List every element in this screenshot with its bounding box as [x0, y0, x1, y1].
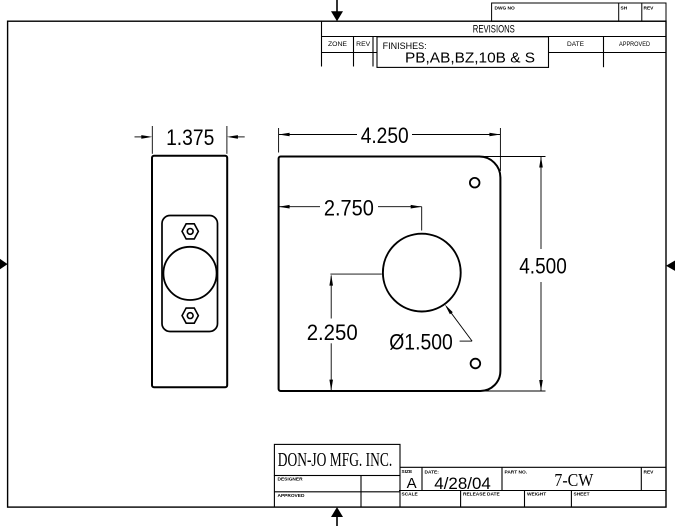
- svg-text:2.250: 2.250: [307, 320, 358, 345]
- svg-text:WEIGHT: WEIGHT: [527, 491, 546, 497]
- svg-text:APPROVED: APPROVED: [619, 41, 650, 48]
- svg-text:APPROVED: APPROVED: [278, 493, 305, 499]
- svg-text:SCALE: SCALE: [402, 491, 419, 497]
- svg-text:DESIGNER: DESIGNER: [278, 477, 304, 483]
- svg-text:Ø1.500: Ø1.500: [389, 330, 453, 355]
- svg-text:4.500: 4.500: [519, 254, 567, 279]
- svg-text:2.750: 2.750: [324, 195, 374, 220]
- svg-text:1.375: 1.375: [166, 125, 214, 150]
- svg-text:DWG NO: DWG NO: [495, 6, 516, 12]
- svg-text:4/28/04: 4/28/04: [434, 474, 491, 493]
- svg-text:SH: SH: [621, 6, 628, 12]
- svg-text:REV: REV: [644, 6, 655, 12]
- svg-text:REV: REV: [644, 469, 655, 475]
- svg-text:RELEASE DATE: RELEASE DATE: [463, 491, 500, 497]
- svg-text:SHEET: SHEET: [574, 491, 590, 497]
- svg-text:PART NO.: PART NO.: [505, 469, 528, 475]
- svg-text:ZONE: ZONE: [328, 41, 348, 48]
- svg-text:DATE: DATE: [567, 41, 585, 48]
- svg-text:4.250: 4.250: [361, 123, 409, 148]
- svg-text:PB,AB,BZ,10B & S: PB,AB,BZ,10B & S: [405, 49, 535, 66]
- svg-text:A: A: [407, 475, 417, 492]
- svg-text:REVISIONS: REVISIONS: [473, 24, 515, 36]
- svg-text:SIZE: SIZE: [402, 469, 413, 475]
- svg-text:REV: REV: [356, 41, 371, 48]
- svg-text:DON-JO MFG. INC.: DON-JO MFG. INC.: [278, 449, 392, 471]
- svg-text:7-CW: 7-CW: [554, 470, 593, 490]
